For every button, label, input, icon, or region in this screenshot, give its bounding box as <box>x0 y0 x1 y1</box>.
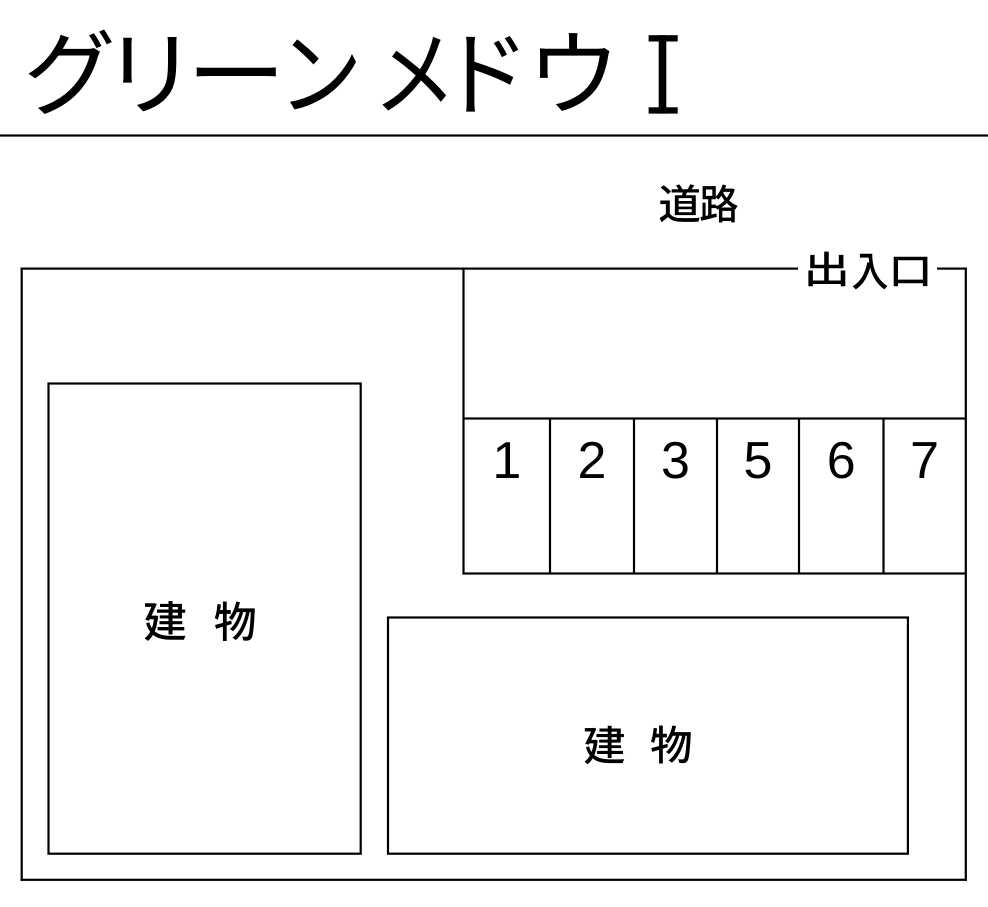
svg-text:7: 7 <box>910 432 939 490</box>
svg-text:3: 3 <box>661 432 690 490</box>
svg-text:6: 6 <box>827 432 856 490</box>
svg-text:1: 1 <box>492 432 521 490</box>
svg-text:2: 2 <box>578 432 607 490</box>
svg-text:5: 5 <box>744 432 773 490</box>
